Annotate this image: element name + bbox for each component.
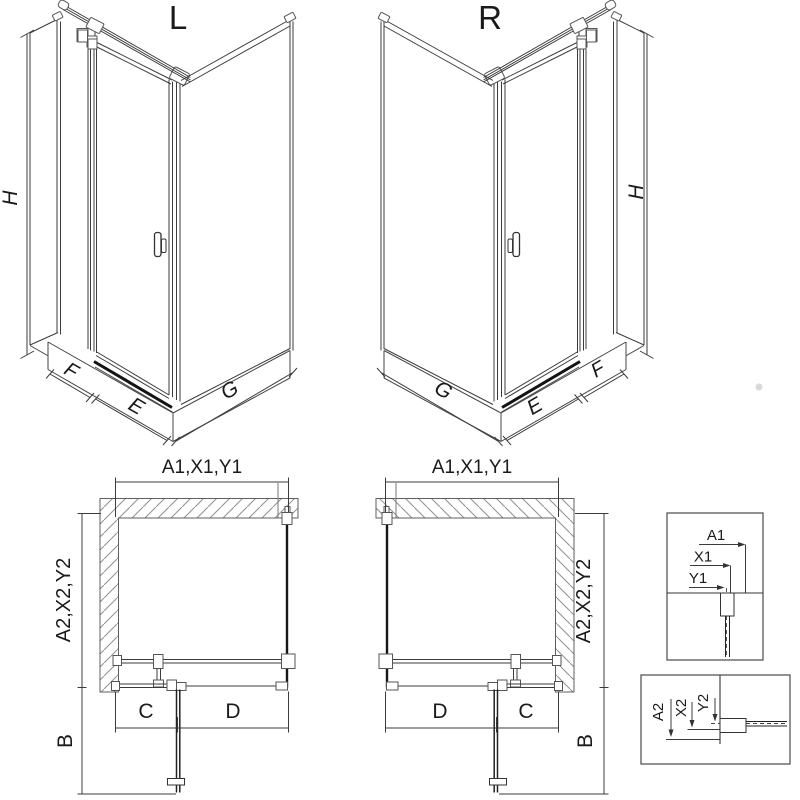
iso-view-left xyxy=(21,0,298,446)
diagram-canvas: A1 X1 Y1 A2 X2 Y2 L R H F E G H F E G A1… xyxy=(0,0,800,800)
detail-label-x2: X2 xyxy=(673,699,690,717)
dim-a2-b-left xyxy=(78,514,177,795)
detail-label-a2: A2 xyxy=(650,703,667,721)
detail-box-bottom: A2 X2 Y2 xyxy=(641,675,790,764)
detail-label-x1: X1 xyxy=(694,549,712,566)
dim-a2-b-right xyxy=(499,514,609,795)
plan-right-dim-c: C xyxy=(518,700,533,723)
plan-right-dim-top: A1,X1,Y1 xyxy=(432,457,512,478)
dim-label-f-right: F xyxy=(587,356,610,382)
dim-label-h-left: H xyxy=(0,190,22,206)
detail-label-a1: A1 xyxy=(707,527,725,544)
plan-left-dim-top: A1,X1,Y1 xyxy=(162,457,242,478)
plan-right-dim-side: A2,X2,Y2 xyxy=(573,559,595,644)
plan-view-left xyxy=(100,478,298,793)
plan-left-dim-b: B xyxy=(54,734,77,748)
dim-label-g-right: G xyxy=(430,376,456,404)
dim-label-h-right: H xyxy=(625,184,648,200)
plan-left-dim-side: A2,X2,Y2 xyxy=(53,558,75,643)
plan-right-dim-b: B xyxy=(574,734,597,748)
detail-box-top: A1 X1 Y1 xyxy=(667,513,763,660)
iso-right-title: R xyxy=(478,0,502,36)
dim-label-g-left: G xyxy=(217,376,243,404)
detail-label-y1: Y1 xyxy=(689,570,707,587)
dim-label-f-left: F xyxy=(60,358,83,384)
diagram-page: A1 X1 Y1 A2 X2 Y2 L R H F E G H F E G A1… xyxy=(0,0,800,800)
dim-label-e-right: E xyxy=(523,392,547,419)
artifact-dot xyxy=(756,384,763,391)
plan-left-dim-d: D xyxy=(225,700,240,723)
plan-left-dim-c: C xyxy=(138,700,153,723)
iso-view-right xyxy=(377,0,654,446)
plan-view-right xyxy=(376,478,574,793)
plan-right-dim-d: D xyxy=(432,700,447,723)
iso-left-title: L xyxy=(169,0,187,36)
detail-label-y2: Y2 xyxy=(695,694,712,712)
